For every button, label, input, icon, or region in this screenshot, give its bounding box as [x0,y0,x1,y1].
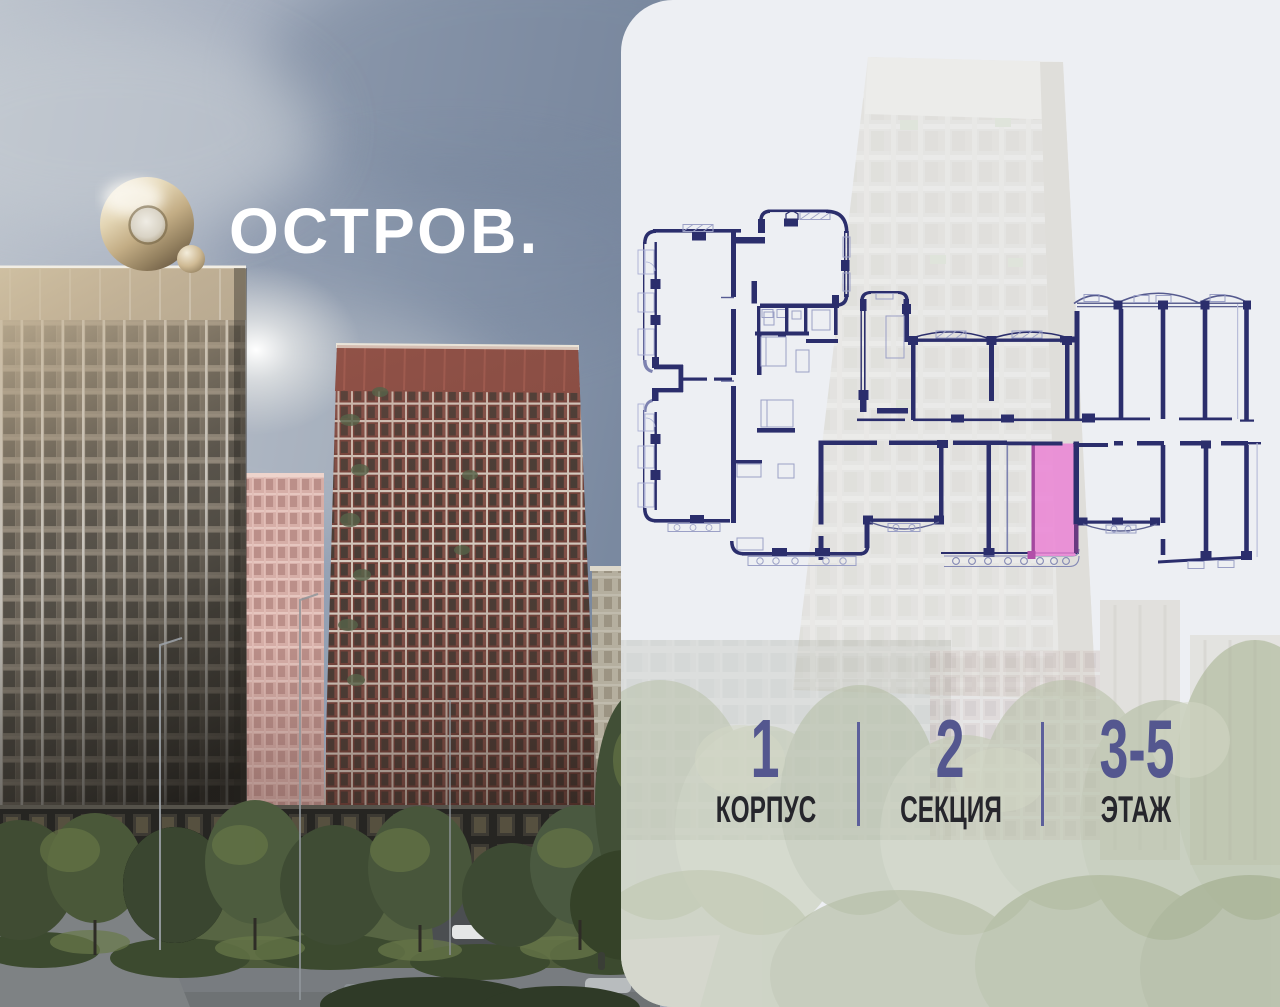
svg-text:ОСТРОВ.: ОСТРОВ. [229,195,541,267]
